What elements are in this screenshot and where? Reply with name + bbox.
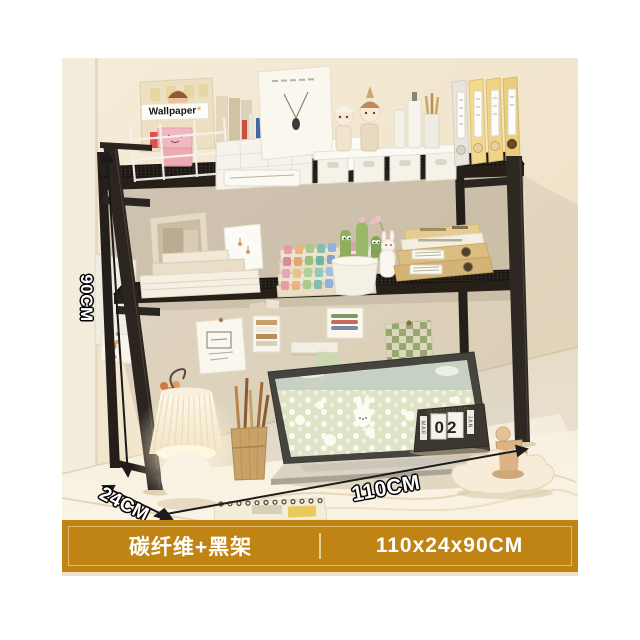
product-card: 02 MAR JAN Wallpaper* 90CM 24CM 110CM	[0, 0, 640, 640]
flip-calendar: 02 MAR JAN	[410, 404, 490, 457]
calendar-month-left: MAR	[420, 421, 426, 435]
product-banner: 碳纤维+黑架 110x24x90CM	[62, 520, 578, 572]
magazine-title-star: *	[197, 106, 201, 116]
calendar-month-right: JAN	[467, 416, 473, 428]
size-label: 110x24x90CM	[321, 534, 578, 558]
binder-stack	[394, 224, 493, 281]
banner-divider	[319, 533, 321, 559]
magazine-title-tag: Wallpaper*	[141, 102, 209, 121]
pencil-cup	[231, 378, 268, 480]
calendar-day: 02	[435, 418, 460, 437]
magazine-title: Wallpaper	[149, 106, 197, 117]
variant-label: 碳纤维+黑架	[62, 531, 319, 561]
